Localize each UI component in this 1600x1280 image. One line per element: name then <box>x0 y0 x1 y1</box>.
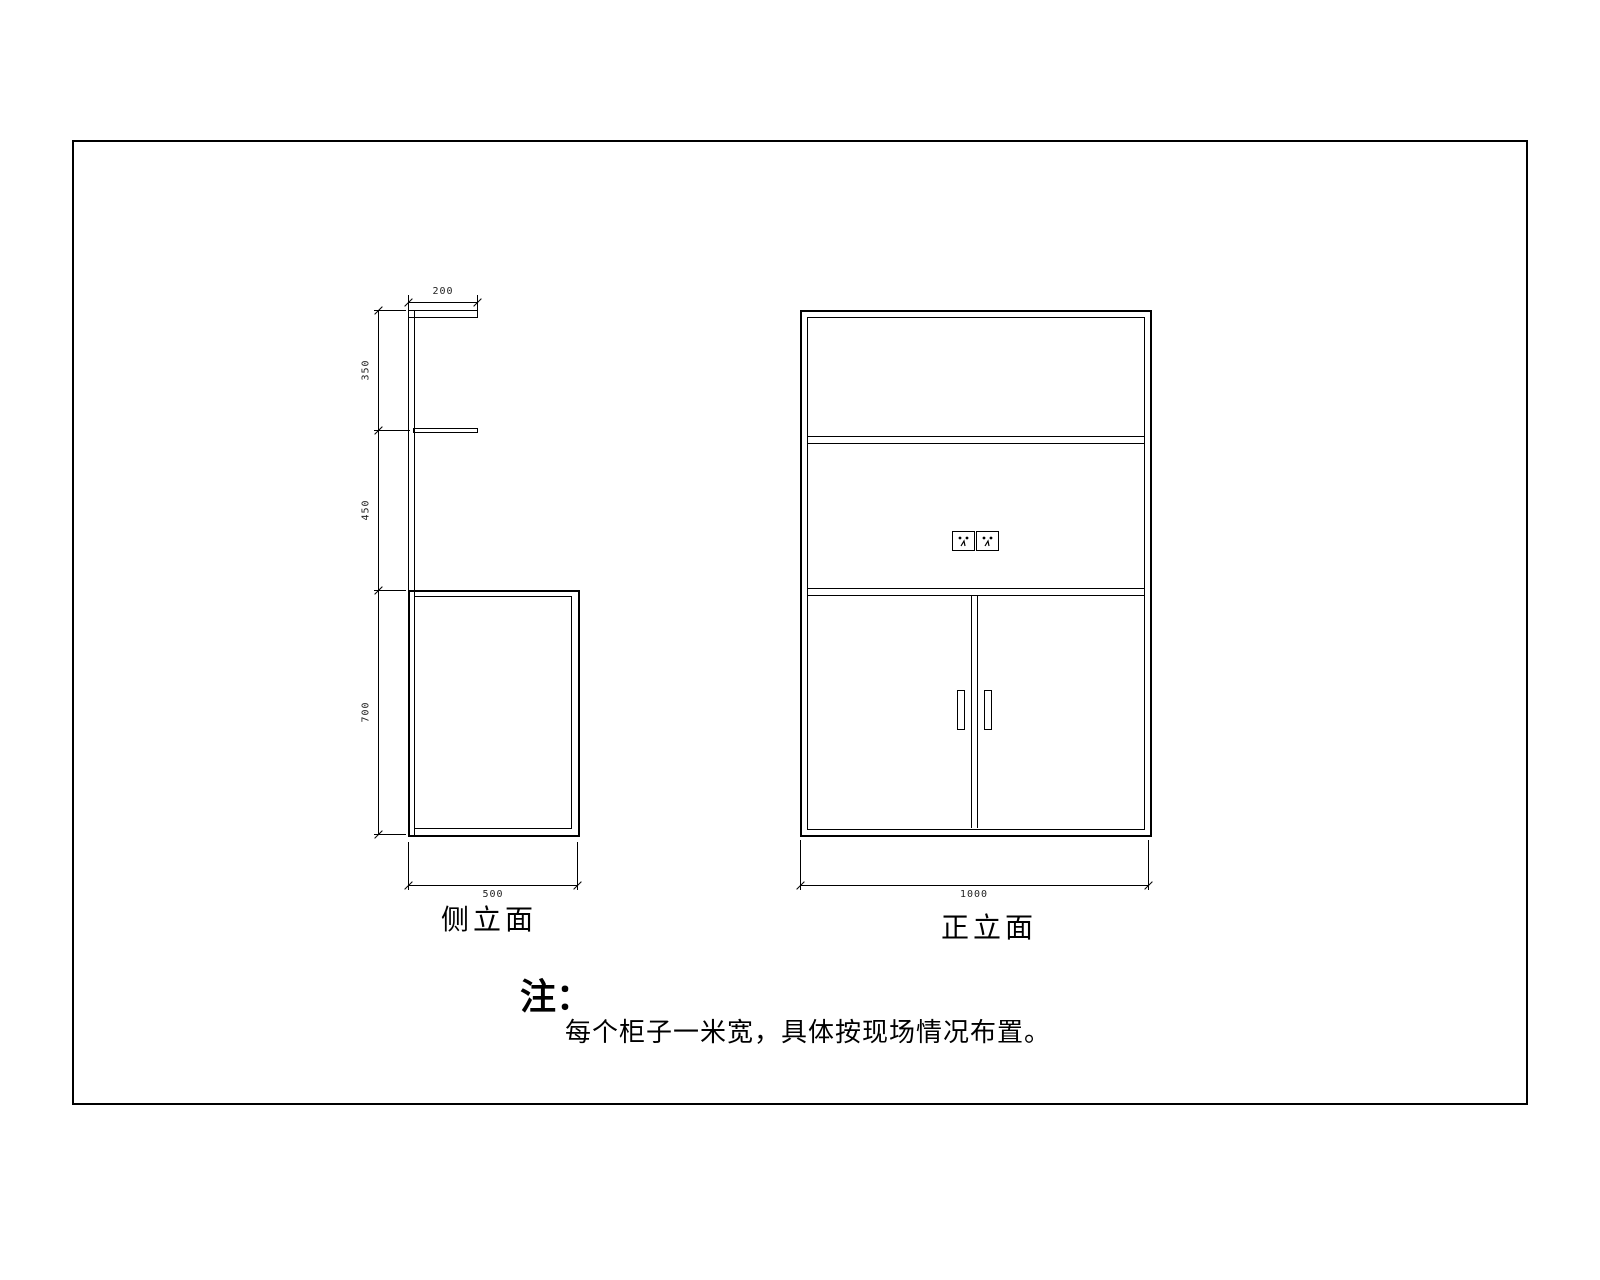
door-gap-line <box>971 596 972 828</box>
divider-line <box>808 588 1144 589</box>
note-body: 每个柜子一米宽，具体按现场情况布置。 <box>565 1012 1051 1049</box>
divider-line <box>808 436 1144 437</box>
divider-line <box>808 443 1144 444</box>
base-cabinet-inner-line <box>414 596 572 829</box>
side-view-label: 侧立面 <box>404 898 574 938</box>
dimension-line <box>378 310 379 835</box>
socket-outlet-icon <box>976 531 999 551</box>
drawing-sheet: 200 350 450 700 500 侧立面 <box>0 0 1600 1280</box>
cabinet-shelf <box>413 428 478 433</box>
door-gap-line <box>977 596 978 828</box>
dimension-line <box>800 885 1149 886</box>
divider-line <box>808 595 1144 596</box>
socket-outlet-icon <box>952 531 975 551</box>
dimension-line <box>408 302 478 303</box>
dim-height-middle: 450 <box>361 499 372 520</box>
front-view-label: 正立面 <box>889 906 1089 946</box>
dim-height-bottom: 700 <box>361 701 372 722</box>
door-handle-right <box>984 690 992 730</box>
cabinet-inner-line <box>807 317 1145 830</box>
door-handle-left <box>957 690 965 730</box>
dimension-line <box>408 885 578 886</box>
cabinet-top-panel <box>408 310 478 318</box>
dim-height-top: 350 <box>361 359 372 380</box>
dim-top-width: 200 <box>432 286 453 297</box>
dim-bottom-width: 1000 <box>960 889 988 900</box>
